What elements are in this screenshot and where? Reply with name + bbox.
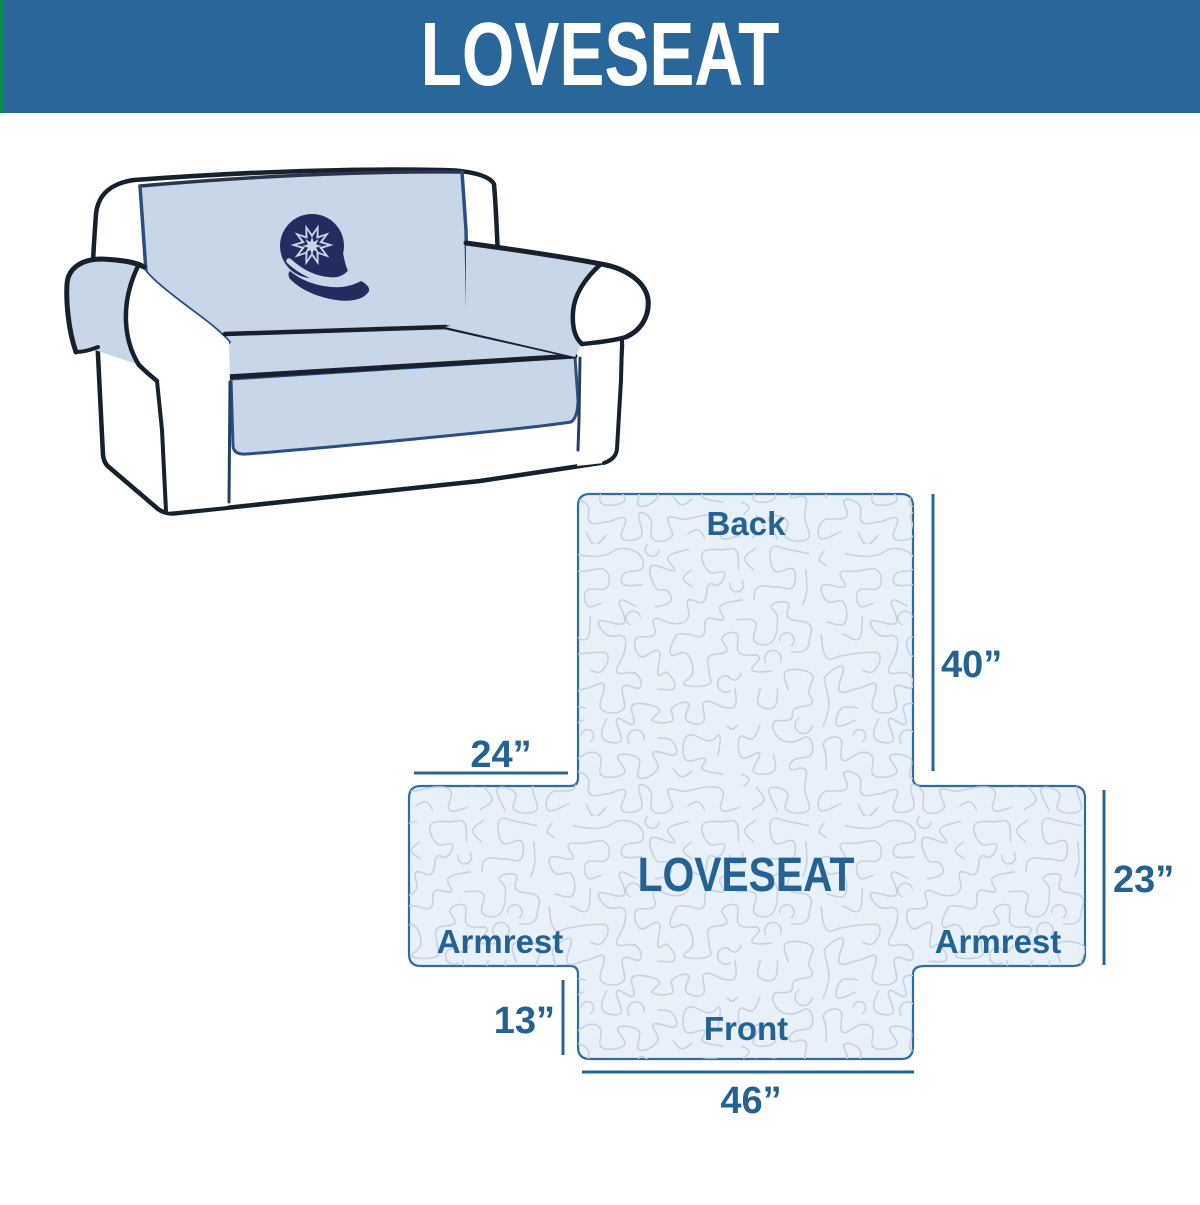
svg-text:Back: Back [707, 505, 787, 542]
svg-text:24”: 24” [470, 734, 531, 776]
svg-text:46”: 46” [720, 1080, 781, 1122]
svg-text:LOVESEAT: LOVESEAT [638, 849, 855, 902]
svg-text:23”: 23” [1113, 859, 1174, 901]
svg-text:40”: 40” [941, 644, 1002, 686]
svg-text:13”: 13” [494, 1000, 555, 1042]
svg-text:Front: Front [704, 1010, 788, 1047]
svg-text:Armrest: Armrest [935, 923, 1062, 960]
svg-text:LOVESEAT: LOVESEAT [421, 4, 780, 105]
svg-text:Armrest: Armrest [437, 923, 564, 960]
